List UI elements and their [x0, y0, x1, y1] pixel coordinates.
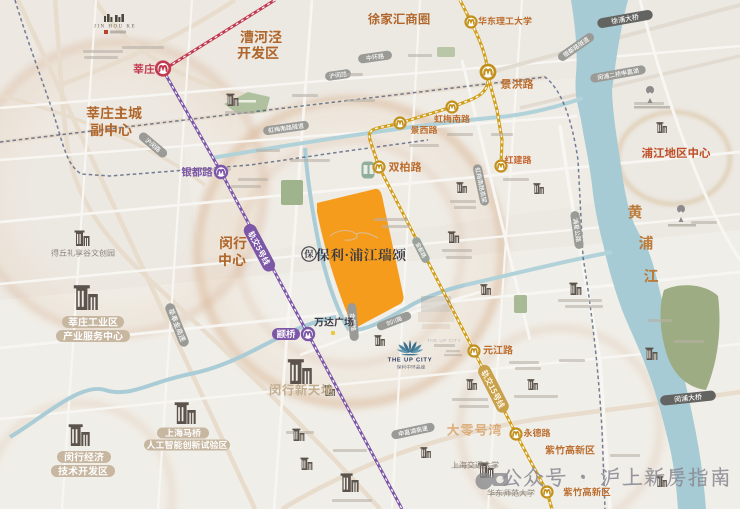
svg-text:JIN HOU KE: JIN HOU KE — [94, 25, 136, 30]
svg-text:THE UP CITY: THE UP CITY — [427, 338, 462, 344]
svg-text:THE UP CITY: THE UP CITY — [388, 358, 433, 364]
